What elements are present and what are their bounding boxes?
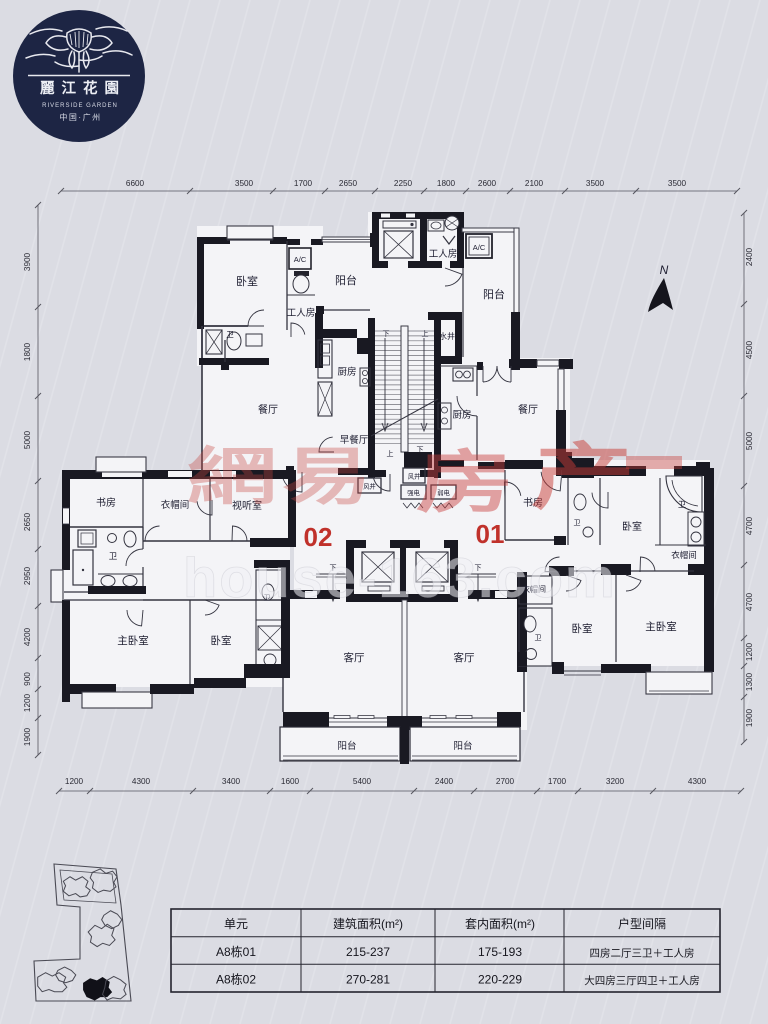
svg-text:1700: 1700 — [548, 775, 567, 787]
svg-text:1800: 1800 — [21, 342, 33, 361]
svg-text:卫: 卫 — [678, 499, 686, 510]
svg-text:house-163.com: house-163.com — [183, 533, 617, 614]
svg-text:单元: 单元 — [224, 915, 248, 932]
svg-text:220-229: 220-229 — [478, 971, 522, 988]
svg-text:3500: 3500 — [668, 177, 687, 189]
svg-text:四房二厅三卫＋工人房: 四房二厅三卫＋工人房 — [590, 946, 695, 961]
svg-text:A8栋01: A8栋01 — [216, 943, 256, 960]
svg-text:餐厅: 餐厅 — [518, 401, 538, 416]
svg-text:5000: 5000 — [743, 431, 755, 450]
svg-text:客厅: 客厅 — [344, 650, 365, 665]
svg-text:水井: 水井 — [439, 331, 455, 342]
svg-text:2250: 2250 — [394, 177, 413, 189]
svg-text:上: 上 — [422, 329, 429, 339]
svg-text:工人房: 工人房 — [287, 305, 316, 319]
svg-text:01: 01 — [476, 514, 505, 551]
svg-text:阳台: 阳台 — [337, 738, 356, 752]
svg-text:2950: 2950 — [21, 566, 33, 585]
svg-text:卧室: 卧室 — [211, 633, 232, 648]
svg-text:阳台: 阳台 — [483, 286, 505, 302]
svg-text:套内面积(m²): 套内面积(m²) — [465, 915, 535, 932]
svg-text:270-281: 270-281 — [346, 971, 390, 988]
svg-text:A8栋02: A8栋02 — [216, 971, 256, 988]
svg-text:A/C: A/C — [473, 242, 486, 253]
svg-text:175-193: 175-193 — [478, 943, 522, 960]
svg-text:215-237: 215-237 — [346, 943, 390, 960]
svg-text:主卧室: 主卧室 — [645, 619, 677, 634]
svg-text:3900: 3900 — [21, 252, 33, 271]
svg-text:5000: 5000 — [21, 430, 33, 449]
svg-text:产: 产 — [531, 418, 635, 522]
svg-text:02: 02 — [304, 517, 333, 554]
svg-text:4300: 4300 — [688, 775, 707, 787]
svg-text:厨房: 厨房 — [337, 364, 356, 378]
svg-text:1200: 1200 — [65, 775, 84, 787]
svg-text:A/C: A/C — [294, 254, 307, 265]
svg-text:衣帽间: 衣帽间 — [671, 549, 697, 561]
svg-text:4700: 4700 — [743, 592, 755, 611]
svg-text:书房: 书房 — [96, 494, 116, 509]
svg-text:RIVERSIDE GARDEN: RIVERSIDE GARDEN — [42, 100, 118, 109]
svg-text:卫: 卫 — [226, 329, 234, 340]
svg-text:下: 下 — [383, 329, 390, 339]
svg-text:2400: 2400 — [435, 775, 454, 787]
svg-text:卫: 卫 — [109, 550, 118, 562]
svg-text:1900: 1900 — [743, 708, 755, 727]
svg-text:900: 900 — [21, 672, 33, 686]
svg-text:工人房: 工人房 — [429, 246, 458, 260]
svg-text:建筑面积(m²): 建筑面积(m²) — [333, 915, 403, 932]
svg-text:1200: 1200 — [743, 642, 755, 661]
svg-text:阳台: 阳台 — [335, 272, 357, 288]
svg-text:6600: 6600 — [126, 177, 145, 189]
svg-text:2650: 2650 — [339, 177, 358, 189]
svg-text:客厅: 客厅 — [454, 650, 475, 665]
svg-text:2600: 2600 — [478, 177, 497, 189]
svg-text:3400: 3400 — [222, 775, 241, 787]
svg-text:衣帽间: 衣帽间 — [161, 497, 190, 511]
svg-text:網: 網 — [187, 427, 277, 517]
svg-text:易: 易 — [282, 427, 372, 517]
svg-text:1300: 1300 — [743, 672, 755, 691]
svg-text:4200: 4200 — [21, 627, 33, 646]
svg-text:麗江花園: 麗江花園 — [40, 77, 126, 98]
svg-text:大四房三厅四卫＋工人房: 大四房三厅四卫＋工人房 — [584, 973, 700, 988]
svg-text:主卧室: 主卧室 — [117, 633, 149, 648]
svg-text:4500: 4500 — [743, 340, 755, 359]
svg-text:阳台: 阳台 — [453, 738, 472, 752]
svg-text:2700: 2700 — [496, 775, 515, 787]
svg-text:4700: 4700 — [743, 516, 755, 535]
svg-text:2650: 2650 — [21, 512, 33, 531]
svg-text:5400: 5400 — [353, 775, 372, 787]
svg-text:1900: 1900 — [21, 727, 33, 746]
svg-text:4300: 4300 — [132, 775, 151, 787]
svg-text:房: 房 — [416, 428, 515, 526]
svg-text:户型间隔: 户型间隔 — [618, 915, 666, 932]
svg-text:1800: 1800 — [437, 177, 456, 189]
svg-text:上: 上 — [387, 449, 394, 459]
svg-text:1600: 1600 — [281, 775, 300, 787]
svg-text:2100: 2100 — [525, 177, 544, 189]
svg-text:1700: 1700 — [294, 177, 313, 189]
svg-text:餐厅: 餐厅 — [258, 401, 278, 416]
svg-text:卧室: 卧室 — [236, 273, 258, 289]
svg-text:3500: 3500 — [235, 177, 254, 189]
svg-text:3200: 3200 — [606, 775, 625, 787]
svg-text:3500: 3500 — [586, 177, 605, 189]
svg-text:卫: 卫 — [535, 633, 542, 643]
svg-text:1200: 1200 — [21, 693, 33, 712]
svg-text:卧室: 卧室 — [572, 621, 593, 636]
svg-text:2400: 2400 — [743, 247, 755, 266]
svg-text:N: N — [660, 261, 669, 278]
svg-text:中国·广州: 中国·广州 — [59, 112, 101, 123]
